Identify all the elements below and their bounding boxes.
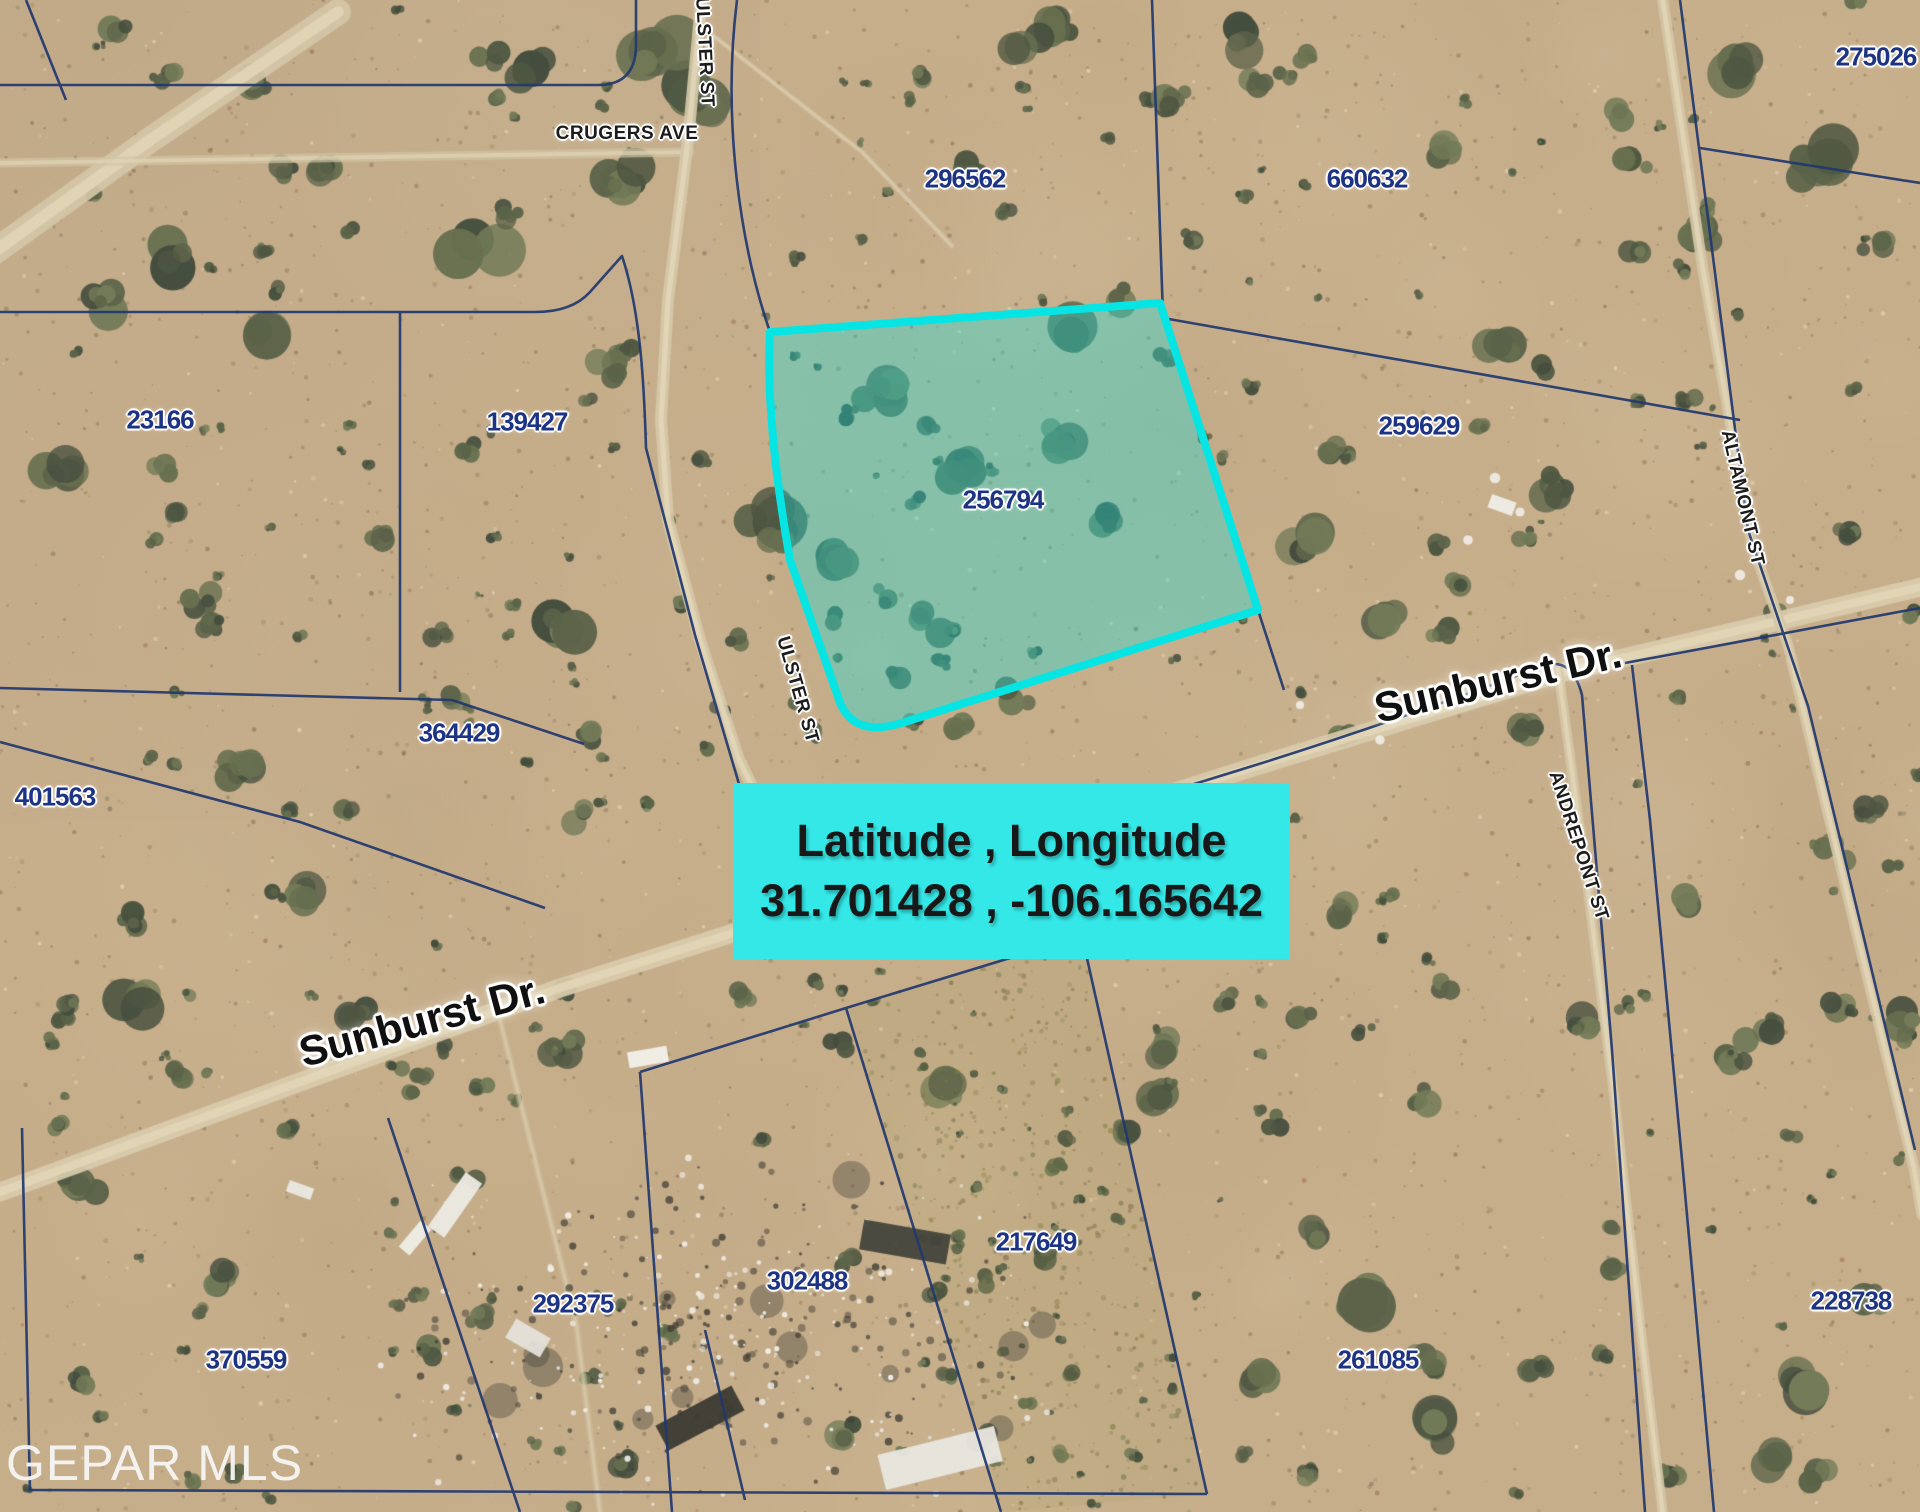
watermark: GEPAR MLS <box>6 1434 303 1492</box>
parcel-boundary-line <box>1082 936 1207 1494</box>
parcel-boundary-line <box>1152 0 1163 316</box>
parcel-boundary-line <box>705 1330 745 1500</box>
highlighted-parcel <box>769 303 1258 727</box>
coordinate-box-title: Latitude , Longitude <box>797 813 1227 869</box>
parcel-boundary-line <box>0 0 636 85</box>
parcel-boundary-line <box>388 1118 520 1512</box>
parcel-boundary-line <box>1163 318 1740 420</box>
parcel-boundary-line <box>0 256 739 784</box>
parcel-boundary-line <box>732 0 770 332</box>
coordinate-label-box: Latitude , Longitude 31.701428 , -106.16… <box>733 783 1290 959</box>
parcel-boundary-line <box>1680 0 1915 1150</box>
parcel-boundary-line <box>846 1008 1001 1512</box>
parcel-boundary-line <box>1543 664 1645 1512</box>
parcel-boundary-line <box>0 688 584 744</box>
parcel-boundary-line <box>1632 665 1714 1512</box>
parcel-boundary-line <box>1140 666 1543 800</box>
map-overlay <box>0 0 1920 1512</box>
parcel-boundary-line <box>0 742 545 908</box>
parcel-boundaries <box>0 0 1920 1512</box>
satellite-map: 2750262965626606322316613942725962925679… <box>0 0 1920 1512</box>
parcel-boundary-line <box>1625 608 1920 663</box>
coordinate-box-values: 31.701428 , -106.165642 <box>760 873 1263 929</box>
parcel-boundary-line <box>1258 610 1284 690</box>
parcel-boundary-line <box>640 1072 672 1512</box>
parcel-boundary-line <box>1700 148 1920 183</box>
